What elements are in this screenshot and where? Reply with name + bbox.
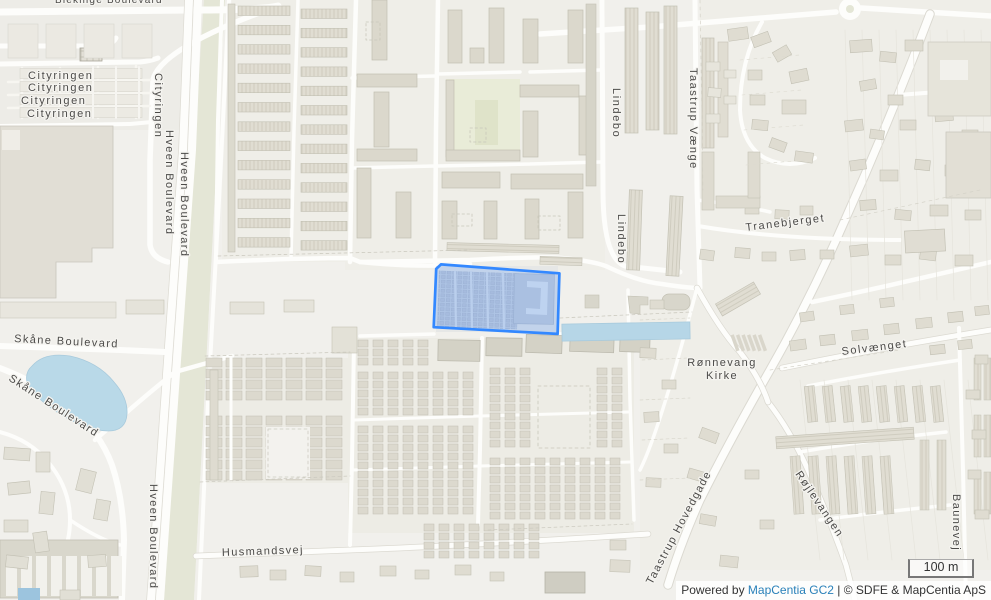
svg-text:Rønnevang: Rønnevang <box>687 357 756 369</box>
svg-text:Baunevej: Baunevej <box>950 494 962 551</box>
svg-text:Hveen Boulevard: Hveen Boulevard <box>147 484 159 589</box>
svg-text:Hveen Boulevard: Hveen Boulevard <box>178 152 190 257</box>
svg-text:Kirke: Kirke <box>706 370 738 382</box>
svg-text:Cityringen: Cityringen <box>28 82 94 94</box>
svg-text:Lindebo: Lindebo <box>615 214 627 264</box>
svg-text:Hveen Boulevard: Hveen Boulevard <box>163 130 175 235</box>
svg-text:Cityringen: Cityringen <box>28 70 94 82</box>
svg-text:Taastrup Vænge: Taastrup Vænge <box>687 68 699 170</box>
svg-text:Blekinge Boulevard: Blekinge Boulevard <box>55 0 163 6</box>
svg-text:Cityringen: Cityringen <box>152 73 164 139</box>
svg-text:Cityringen: Cityringen <box>27 108 93 120</box>
svg-text:Lindebo: Lindebo <box>610 88 622 138</box>
svg-text:Cityringen: Cityringen <box>21 95 87 107</box>
